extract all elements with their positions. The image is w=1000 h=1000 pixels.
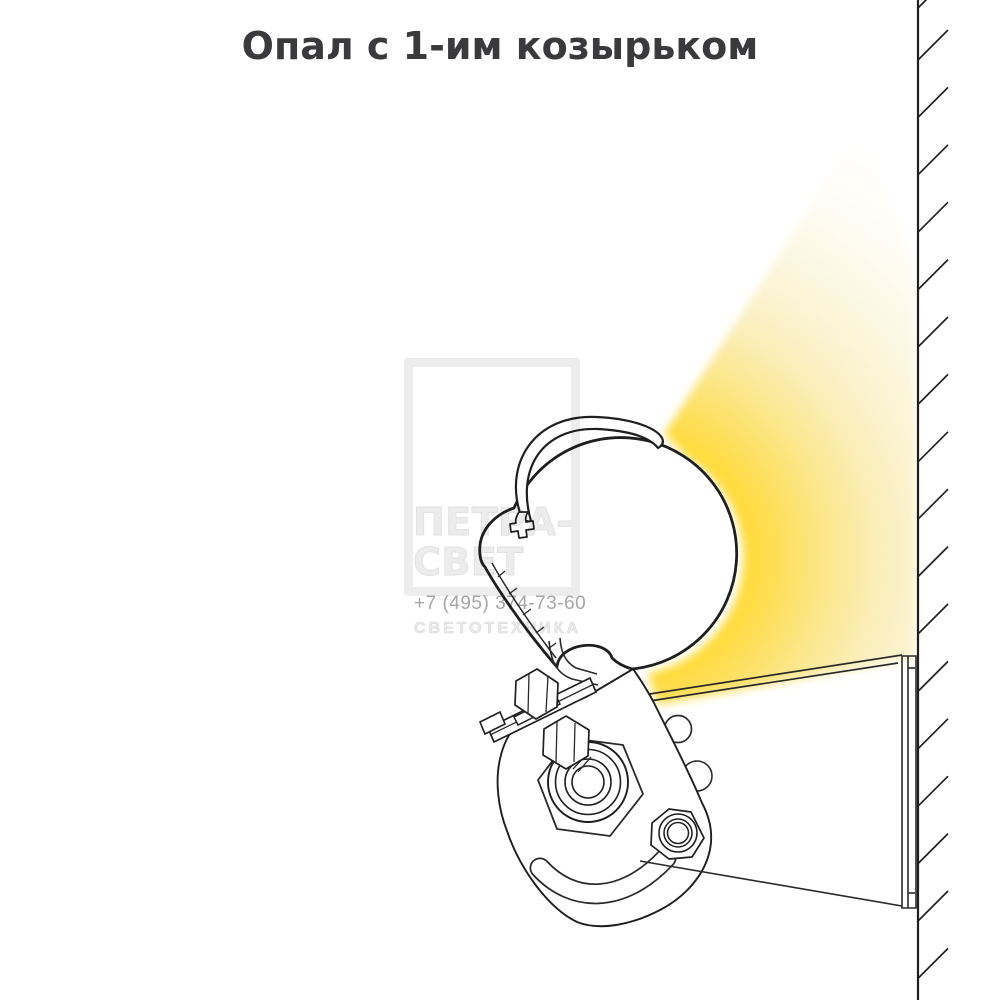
hatch-line: [918, 202, 948, 232]
hatch-line: [918, 260, 948, 290]
hatch-line: [918, 547, 948, 577]
hatch-line: [918, 604, 948, 634]
wall: [918, 0, 948, 1000]
hatch-line: [918, 432, 948, 462]
wall-hatching: [918, 0, 948, 978]
hatch-line: [918, 317, 948, 347]
hatch-line: [918, 891, 948, 921]
page-title: Опал с 1-им козырьком: [0, 24, 1000, 68]
hatch-line: [918, 776, 948, 806]
hatch-line: [918, 834, 948, 864]
diagram-page: ПЕТРА- СВЕТ +7 (495) 374-73-60 СВЕТОТЕХН…: [0, 0, 1000, 1000]
hatch-line: [918, 374, 948, 404]
hatch-line: [918, 489, 948, 519]
hatch-line: [918, 145, 948, 175]
wall-plate: [902, 656, 916, 908]
lamp-diagram: [0, 0, 1000, 1000]
hatch-line: [918, 661, 948, 691]
hatch-line: [918, 0, 934, 8]
hatch-line: [918, 87, 948, 117]
hatch-line: [918, 719, 948, 749]
hatch-line: [918, 948, 948, 978]
